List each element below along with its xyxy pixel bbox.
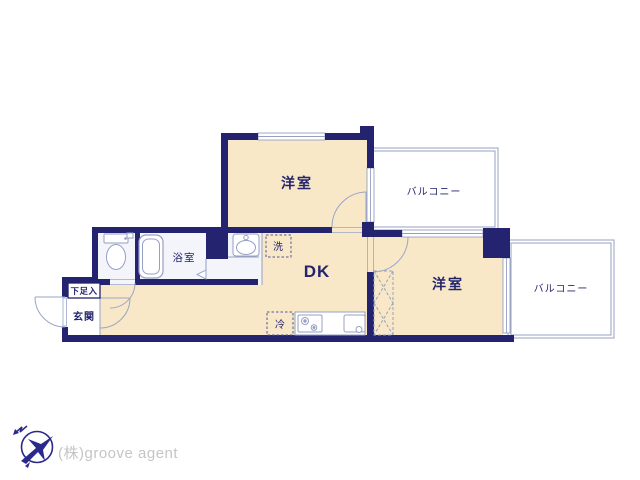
kitchen-sink-icon [344,315,365,333]
shoe-cabinet-label: 下足入 [70,286,97,296]
refrigerator-label: 冷 [275,318,285,331]
bird-icon [21,436,53,464]
bathtub-icon [139,235,163,278]
upper-balcony-label: バルコニー [407,186,462,198]
dk-label: DK [304,262,331,281]
bathroom-label: 浴室 [173,251,196,264]
compass-bird-logo [13,426,53,468]
entrance-door-arc [35,297,65,327]
entrance-door-leaf [63,298,67,326]
washbasin-icon [233,234,259,256]
hallway-floor [100,285,262,335]
pillar [483,228,510,258]
upper-room-label: 洋室 [281,175,313,191]
washroom-lower-strip [206,259,228,279]
pipe-block [206,227,228,259]
company-name: (株)groove agent [58,445,178,462]
shoe-cabinet: 下足入 [68,283,100,298]
kitchen-counter [295,312,365,335]
floor-plan-canvas: 洋室 洋室 バルコニー バルコニー 浴室 DK 洗 冷 下足入 玄関 (株)gr… [0,0,640,480]
wc-controller [127,233,133,238]
right-room-label: 洋室 [432,276,464,292]
washing-machine-label: 洗 [273,241,283,253]
right-balcony-label: バルコニー [534,283,589,295]
entrance-label: 玄関 [73,310,95,323]
floor-plan-drawing: 洋室 洋室 バルコニー バルコニー 浴室 DK 洗 冷 下足入 玄関 (株)gr… [0,0,640,480]
stove-icon [298,315,322,332]
